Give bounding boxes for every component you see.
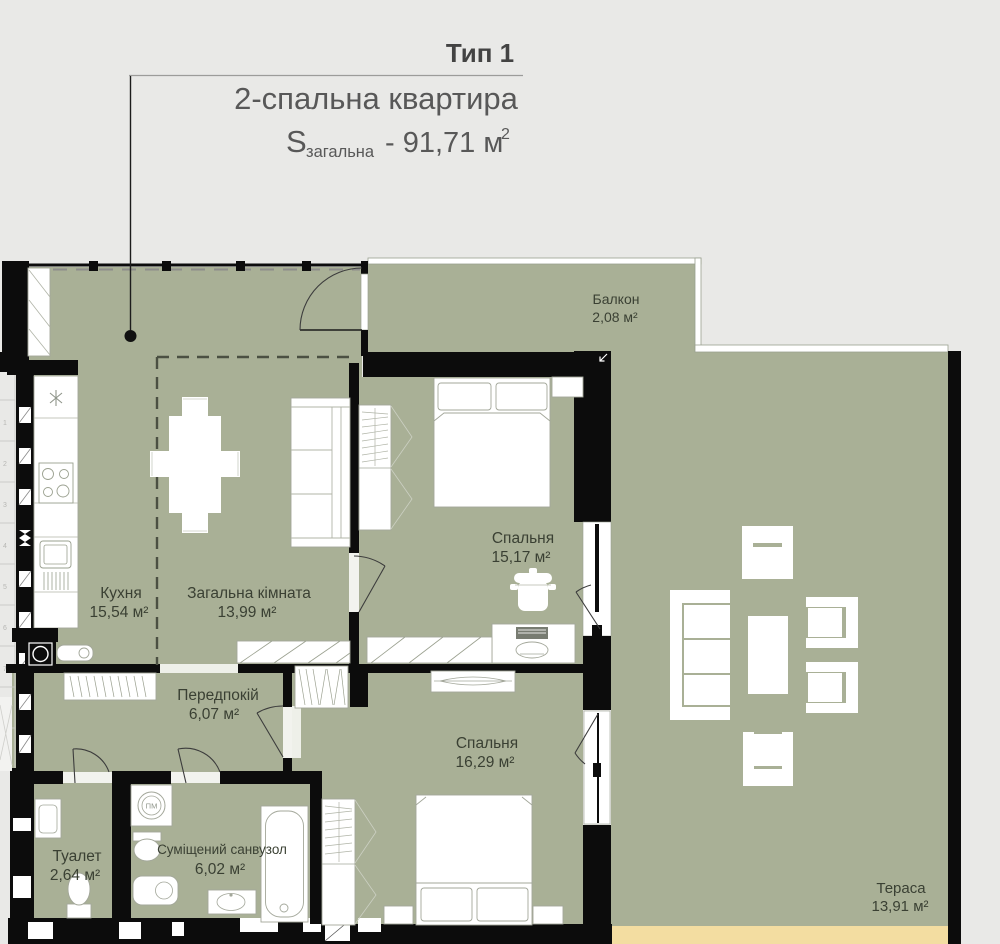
svg-text:Спальня: Спальня [456, 735, 518, 752]
svg-text:16,29 м²: 16,29 м² [456, 754, 515, 771]
svg-text:Загальна кімната: Загальна кімната [187, 585, 311, 602]
svg-text:S: S [286, 124, 307, 159]
svg-text:Спальня: Спальня [492, 530, 554, 547]
svg-text:13,99 м²: 13,99 м² [218, 604, 277, 621]
svg-text:Балкон: Балкон [593, 291, 640, 307]
svg-text:- 91,71 м: - 91,71 м [385, 127, 503, 159]
svg-text:Туалет: Туалет [52, 848, 101, 865]
svg-text:5: 5 [3, 584, 7, 591]
svg-text:15,54 м²: 15,54 м² [90, 604, 149, 621]
svg-text:2: 2 [501, 126, 510, 143]
svg-text:Передпокій: Передпокій [177, 687, 259, 704]
svg-text:4: 4 [3, 543, 7, 550]
svg-text:15,17 м²: 15,17 м² [492, 549, 551, 566]
svg-text:Кухня: Кухня [100, 585, 141, 602]
svg-text:6,07 м²: 6,07 м² [189, 706, 239, 723]
svg-text:загальна: загальна [306, 143, 375, 161]
svg-text:1: 1 [3, 420, 7, 427]
svg-text:2: 2 [3, 461, 7, 468]
svg-text:3: 3 [3, 502, 7, 509]
svg-text:Тераса: Тераса [876, 880, 926, 897]
svg-text:Суміщений санвузол: Суміщений санвузол [157, 842, 287, 857]
svg-text:13,91 м²: 13,91 м² [871, 898, 928, 915]
svg-text:6: 6 [3, 625, 7, 632]
svg-text:2-спальна квартира: 2-спальна квартира [234, 81, 519, 116]
svg-text:ПМ: ПМ [146, 802, 158, 811]
svg-text:2,64 м²: 2,64 м² [50, 867, 100, 884]
svg-text:6,02 м²: 6,02 м² [195, 861, 245, 878]
svg-text:2,08 м²: 2,08 м² [592, 309, 638, 325]
svg-text:Тип 1: Тип 1 [446, 38, 514, 68]
